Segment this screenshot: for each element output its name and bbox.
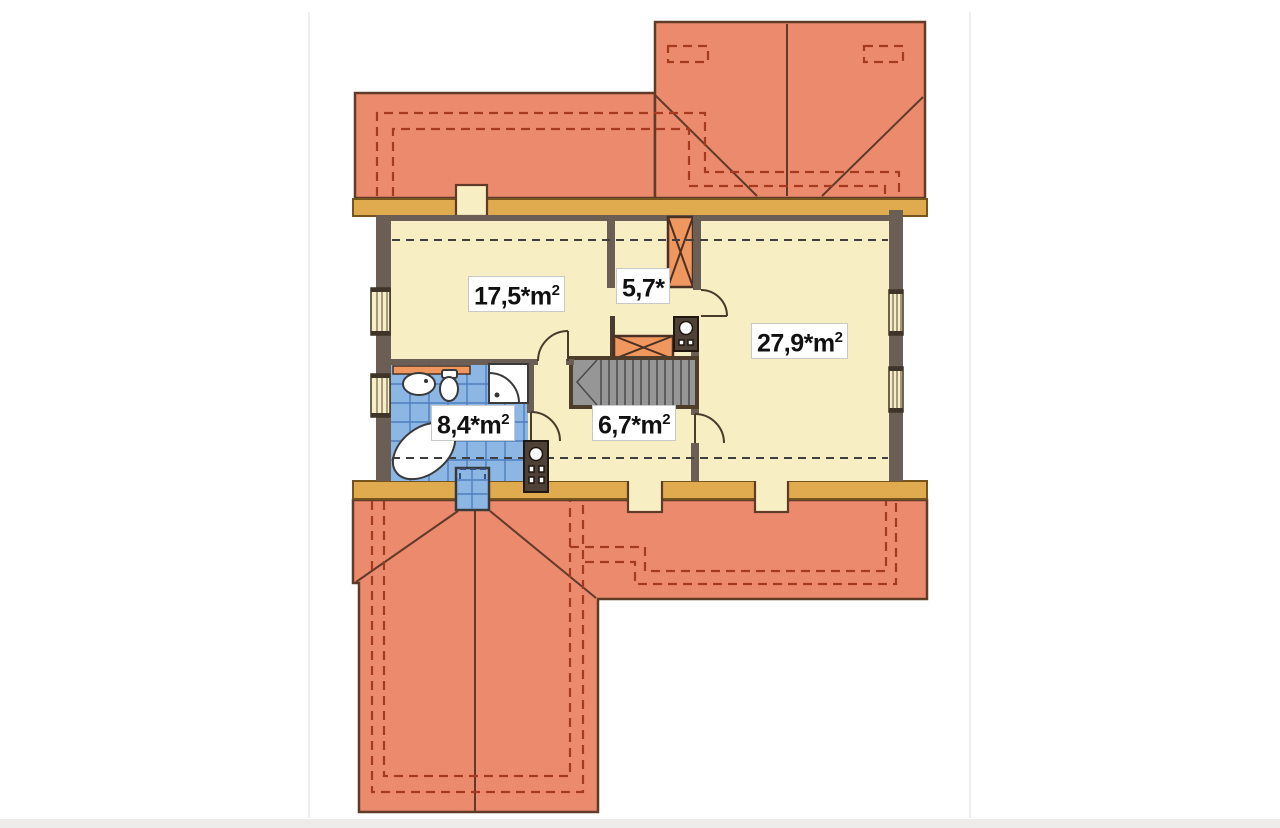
window-left-upper (371, 288, 390, 335)
room-area-label-8-4: 8,4*m2 (431, 405, 515, 441)
eaves-band-top (353, 199, 927, 216)
stairs (571, 358, 697, 407)
floor-plan-page: 17,5*m2 5,7* 27,9*m2 8,4*m2 6,7*m2 (0, 0, 1280, 828)
chimney-flue-kitchen (614, 336, 673, 359)
shower-icon (489, 364, 528, 403)
toilet-icon (440, 370, 458, 401)
dormer-bay-bathroom (456, 468, 489, 510)
room-area-label-6-7: 6,7*m2 (592, 405, 676, 441)
room-area-label-5-7: 5,7* (616, 268, 670, 304)
window-right-upper (889, 290, 903, 335)
sink-icon (403, 373, 435, 395)
wall-right (889, 210, 903, 481)
room-area-label-27-9: 27,9*m2 (751, 323, 848, 359)
wall-top (391, 215, 889, 221)
window-left-lower (371, 374, 390, 417)
bathroom-shelf (393, 366, 470, 374)
boiler-icon (524, 441, 548, 492)
window-right-lower (889, 367, 903, 412)
partition-landing-left (607, 216, 615, 288)
roof-bottom (353, 500, 927, 812)
stove-icon (674, 317, 698, 351)
chimney-flue-upper (668, 216, 701, 290)
room-area-label-17-5: 17,5*m2 (468, 276, 565, 312)
wall-left (376, 215, 391, 481)
roof-top-left (355, 93, 655, 198)
